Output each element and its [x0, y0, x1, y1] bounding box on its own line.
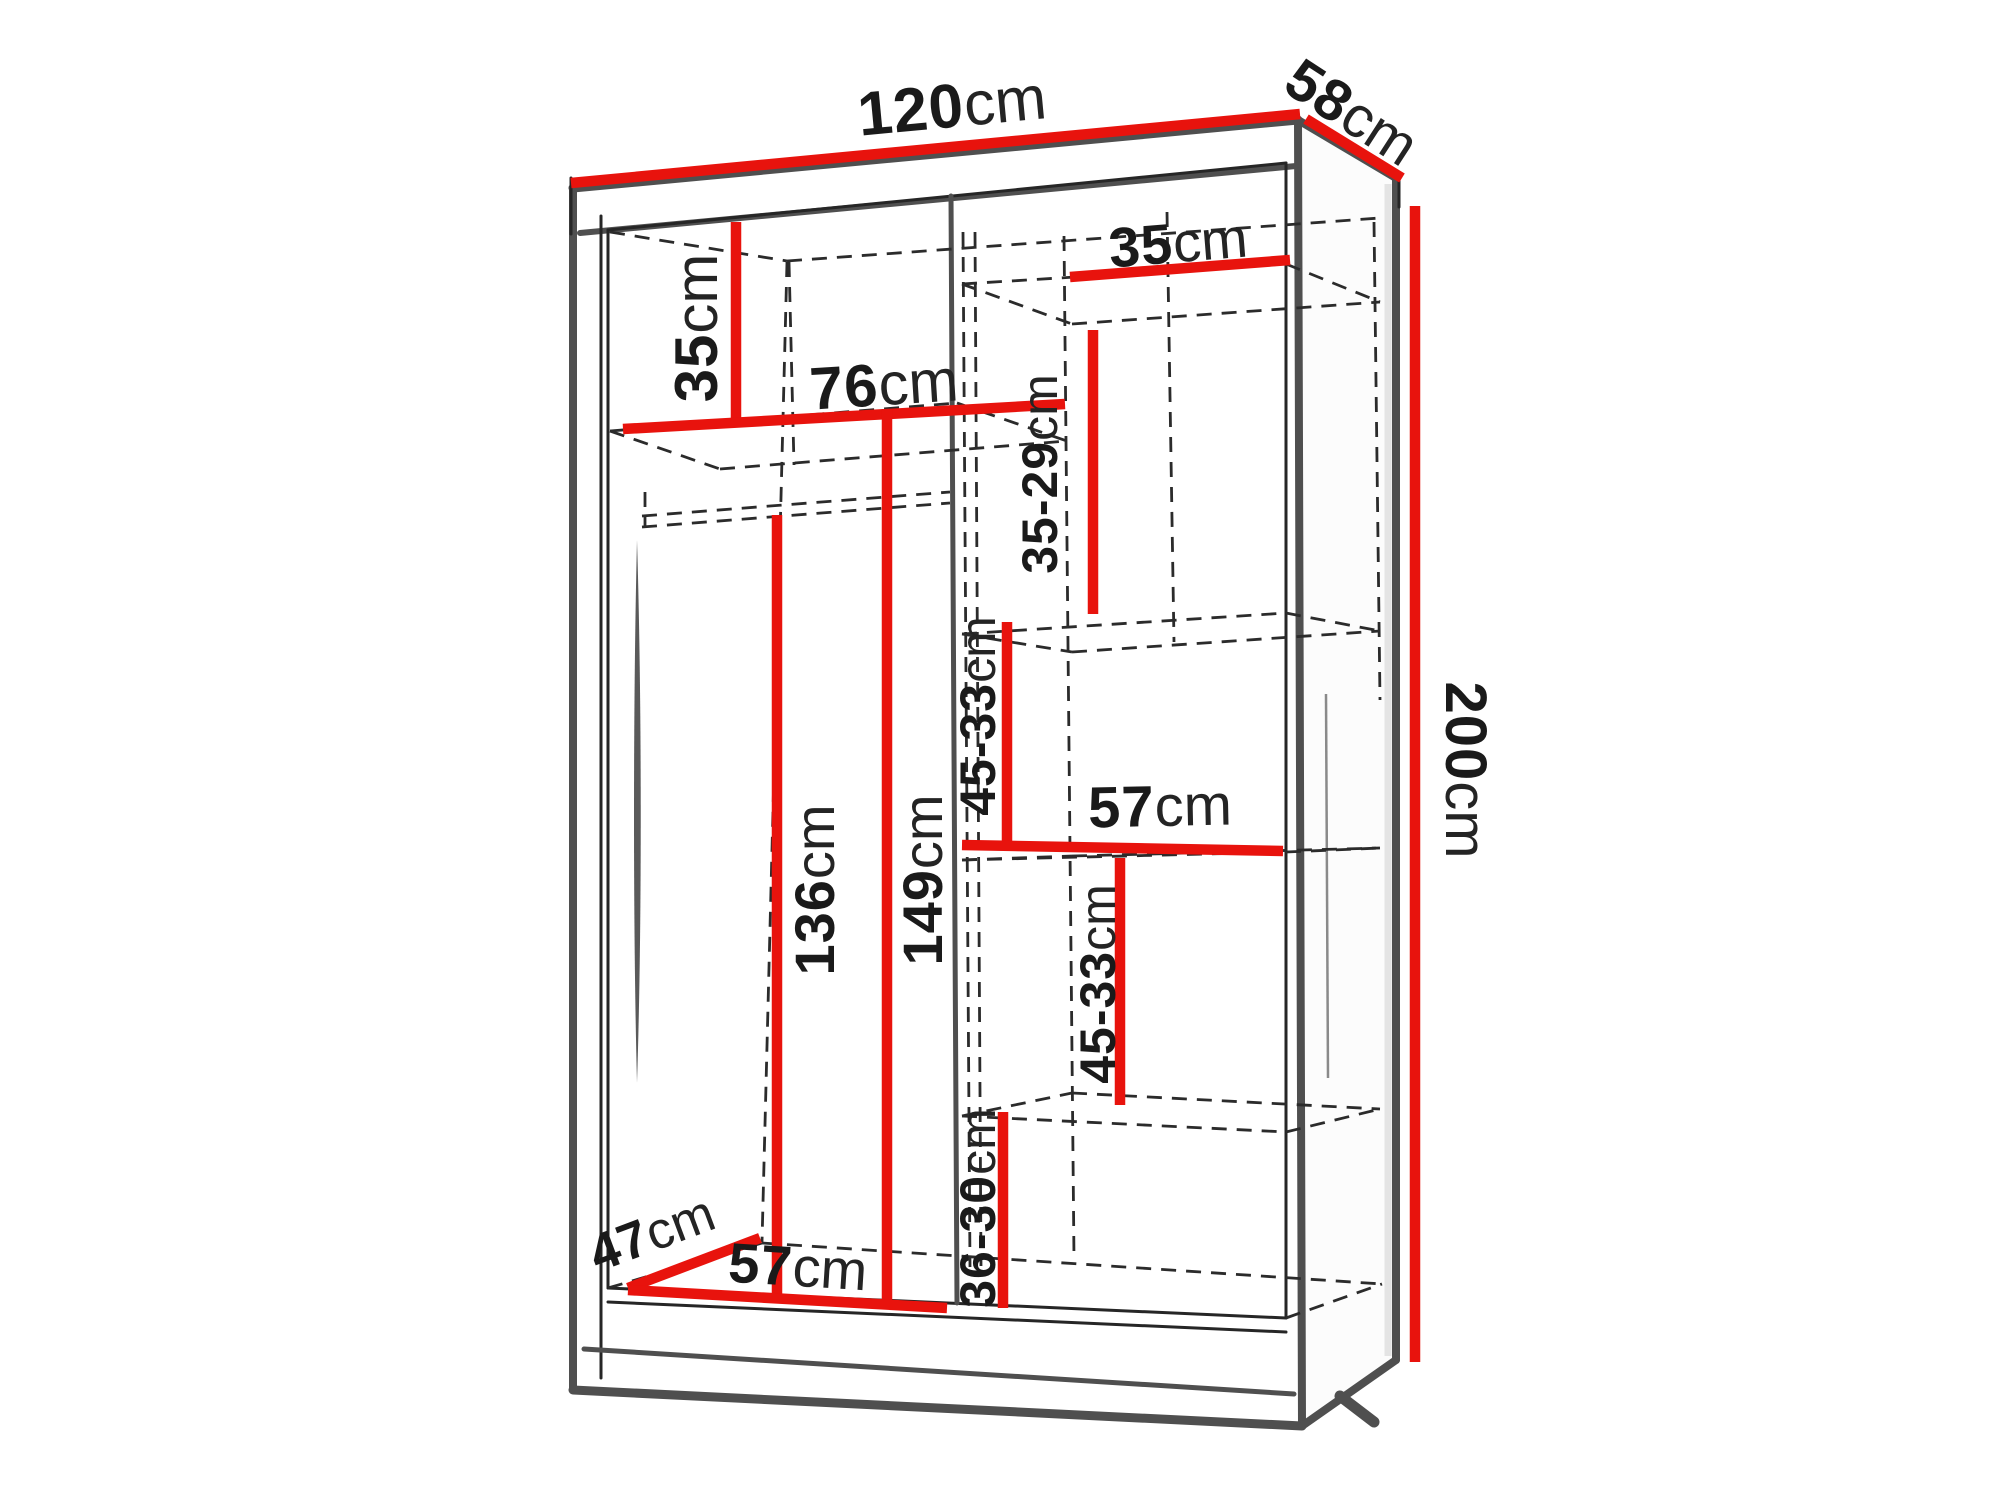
label-overall-height: 200cm	[1434, 681, 1499, 858]
label-left-compartment-height: 149cm	[891, 794, 954, 965]
side-panel-foot	[1340, 1396, 1374, 1422]
right-shelf4-front-edge	[962, 1116, 1286, 1132]
label-right-bottom-height: 36-30cm	[950, 1108, 1006, 1308]
front-bottom-edge	[573, 1390, 1302, 1426]
dim-line-right-middle-shelf-width	[962, 845, 1283, 851]
diagram-canvas: 120cm 58cm 200cm 35cm 76cm 35cm 35-29cm …	[0, 0, 2000, 1500]
label-right-top-shelf-width: 35cm	[1106, 205, 1250, 279]
right-shelf1-side-edge	[962, 284, 1072, 324]
right-column-hidden-edge	[1167, 212, 1174, 642]
label-upper-shelf-width: 76cm	[808, 346, 961, 422]
hanging-rail-top	[642, 492, 950, 516]
side-panel-face	[1298, 122, 1396, 1426]
ceiling-back-edge	[787, 218, 1380, 261]
left-door-handle	[634, 540, 641, 1083]
left-shelf-side-edge	[610, 431, 720, 469]
wardrobe-dimension-diagram: 120cm 58cm 200cm 35cm 76cm 35cm 35-29cm …	[0, 0, 2000, 1500]
label-hanging-height: 136cm	[783, 804, 846, 975]
label-right-spacing-lower: 45-33cm	[1070, 884, 1126, 1084]
front-right-edge	[1298, 120, 1302, 1426]
left-column-hidden-edge	[789, 262, 794, 465]
label-right-spacing-middle: 45-33cm	[950, 616, 1006, 816]
hanging-rail-bottom	[642, 503, 950, 527]
label-interior-depth: 47cm	[581, 1184, 722, 1284]
label-left-bottom-width: 57cm	[727, 1230, 870, 1302]
label-right-middle-shelf-width: 57cm	[1087, 772, 1232, 840]
label-right-spacing-upper: 35-29cm	[1012, 374, 1068, 574]
plinth-top-edge	[584, 1349, 1294, 1394]
label-left-top-height: 35cm	[663, 254, 730, 403]
